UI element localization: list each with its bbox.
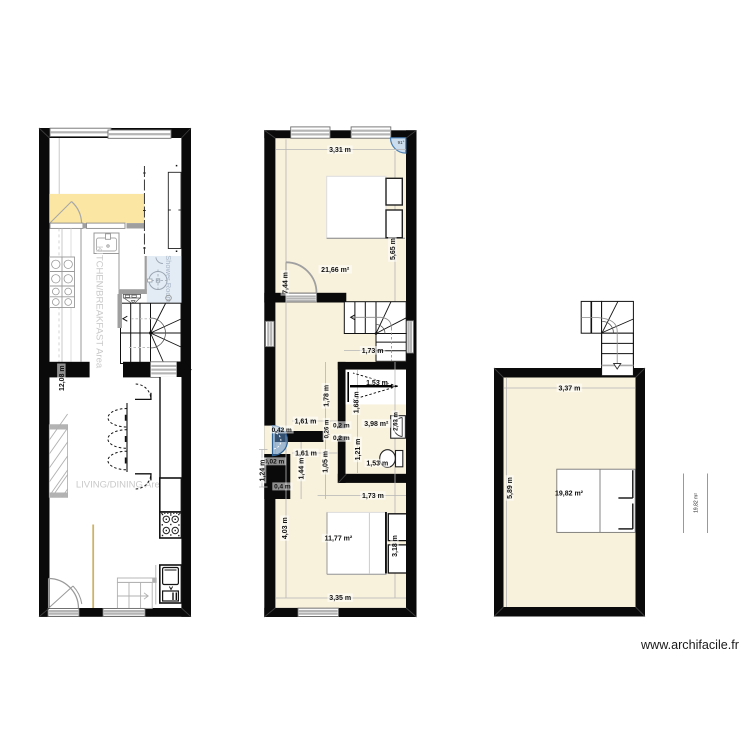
svg-text:5,89 m: 5,89 m: [507, 477, 514, 499]
svg-text:12,08 m: 12,08 m: [59, 365, 66, 391]
svg-text:1,73 m: 1,73 m: [362, 493, 384, 500]
svg-text:www.archifacile.fr: www.archifacile.fr: [640, 638, 739, 652]
svg-text:3,98 m²: 3,98 m²: [364, 421, 389, 428]
svg-text:1,21 m: 1,21 m: [355, 439, 362, 461]
svg-text:3,35 m: 3,35 m: [329, 595, 351, 602]
svg-text:1,05 m: 1,05 m: [323, 451, 330, 473]
svg-text:5,65 m: 5,65 m: [390, 238, 397, 260]
svg-text:1,68 m: 1,68 m: [354, 391, 361, 413]
svg-text:19,82 m²: 19,82 m²: [555, 490, 584, 497]
svg-text:0,02 m: 0,02 m: [264, 459, 284, 466]
svg-text:0,26 m: 0,26 m: [325, 420, 331, 439]
svg-text:19,82 m²: 19,82 m²: [694, 493, 700, 513]
svg-text:LIVING/DINING Area: LIVING/DINING Area: [76, 479, 166, 490]
svg-text:91°: 91°: [398, 140, 405, 145]
svg-text:1,73 m: 1,73 m: [362, 348, 384, 355]
svg-text:0,2 m: 0,2 m: [333, 435, 350, 442]
svg-text:11,77 m²: 11,77 m²: [325, 536, 353, 543]
svg-text:3,31 m: 3,31 m: [329, 147, 351, 154]
svg-text:0,4 m: 0,4 m: [274, 484, 291, 491]
svg-text:0,2 m: 0,2 m: [333, 423, 350, 430]
svg-text:3,37 m: 3,37 m: [559, 385, 581, 392]
svg-text:7,44 m: 7,44 m: [282, 272, 289, 294]
svg-text:1,24 m: 1,24 m: [260, 460, 267, 482]
svg-text:1,44 m: 1,44 m: [299, 458, 306, 480]
svg-text:KITCHEN/BREAKFAST Area: KITCHEN/BREAKFAST Area: [94, 246, 105, 369]
svg-text:1,53 m: 1,53 m: [366, 461, 388, 468]
svg-text:1,61 m: 1,61 m: [295, 418, 317, 425]
svg-text:2,63 m: 2,63 m: [393, 412, 399, 431]
svg-text:21,66 m²: 21,66 m²: [321, 267, 350, 274]
svg-text:3,18 m: 3,18 m: [392, 535, 399, 557]
svg-text:1,78 m: 1,78 m: [323, 385, 330, 407]
svg-text:0,42 m: 0,42 m: [272, 427, 292, 434]
svg-text:4,03 m: 4,03 m: [282, 517, 289, 539]
